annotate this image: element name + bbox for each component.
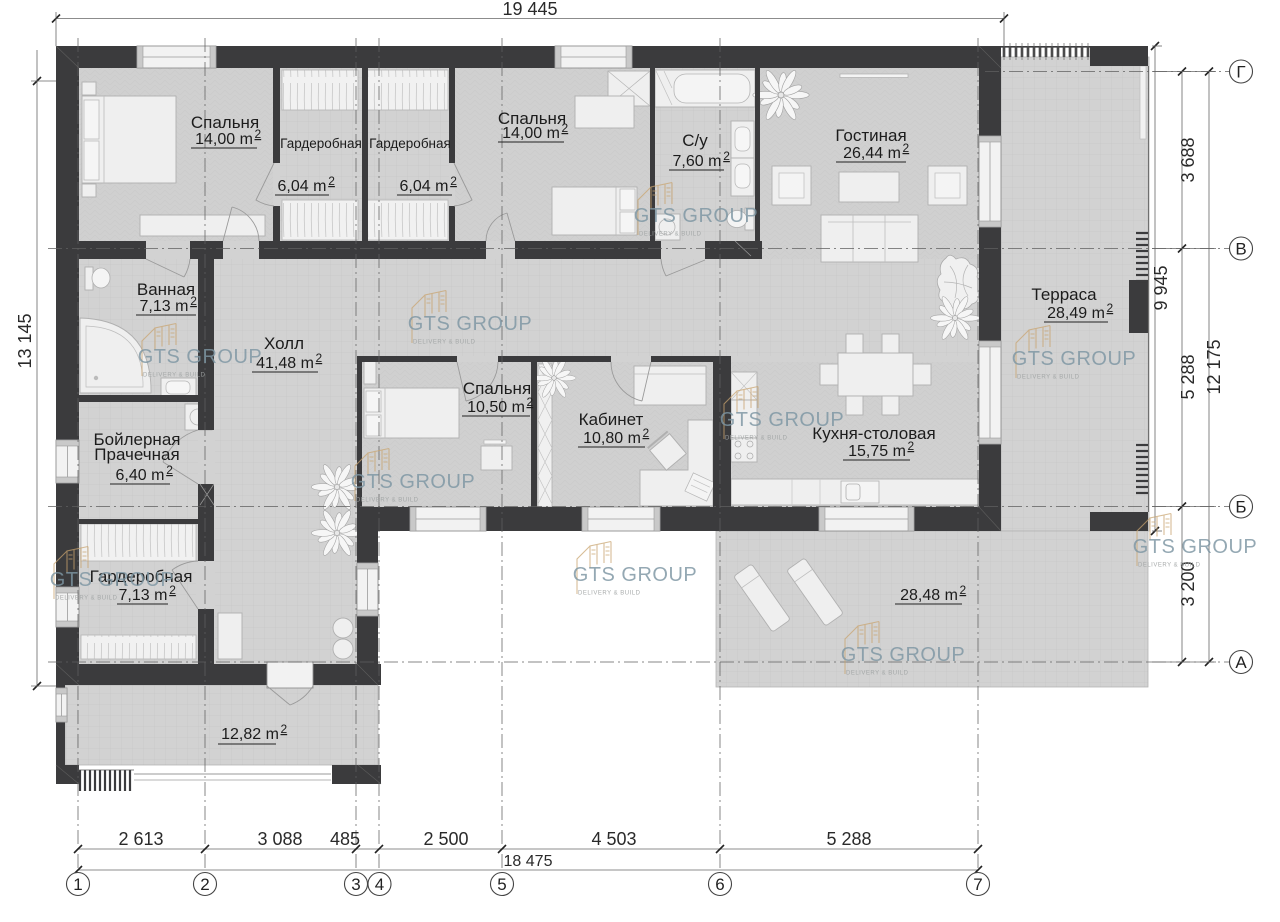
- svg-text:DELIVERY & BUILD: DELIVERY & BUILD: [55, 596, 118, 602]
- svg-text:18 475: 18 475: [504, 853, 553, 870]
- svg-text:10,80 m: 10,80 m: [583, 430, 641, 447]
- svg-text:2: 2: [316, 351, 323, 365]
- svg-text:13 145: 13 145: [15, 313, 35, 368]
- svg-text:DELIVERY & BUILD: DELIVERY & BUILD: [1138, 563, 1201, 569]
- svg-text:2: 2: [1107, 301, 1114, 315]
- svg-text:DELIVERY & BUILD: DELIVERY & BUILD: [356, 498, 419, 504]
- svg-text:2: 2: [328, 174, 335, 188]
- svg-text:Гардеробная: Гардеробная: [280, 136, 362, 151]
- svg-text:5 288: 5 288: [1178, 354, 1198, 399]
- svg-text:GTS GROUP: GTS GROUP: [841, 644, 966, 666]
- svg-text:Холл: Холл: [264, 334, 304, 353]
- svg-text:2: 2: [723, 149, 730, 163]
- svg-text:Терраса: Терраса: [1031, 285, 1097, 304]
- svg-text:Прачечная: Прачечная: [94, 445, 179, 464]
- svg-text:7: 7: [973, 875, 982, 894]
- svg-text:DELIVERY & BUILD: DELIVERY & BUILD: [578, 591, 641, 597]
- svg-text:2: 2: [450, 174, 457, 188]
- svg-text:Гостиная: Гостиная: [835, 126, 906, 145]
- svg-text:2 613: 2 613: [118, 829, 163, 849]
- svg-text:DELIVERY & BUILD: DELIVERY & BUILD: [846, 671, 909, 677]
- svg-text:2: 2: [960, 583, 967, 597]
- svg-text:GTS GROUP: GTS GROUP: [351, 471, 476, 493]
- svg-text:Гардеробная: Гардеробная: [369, 136, 451, 151]
- svg-text:7,13 m: 7,13 m: [140, 298, 189, 315]
- svg-text:4 503: 4 503: [591, 829, 636, 849]
- svg-text:15,75 m: 15,75 m: [848, 443, 906, 460]
- svg-text:7,60 m: 7,60 m: [673, 153, 722, 170]
- svg-text:3 088: 3 088: [257, 829, 302, 849]
- svg-text:DELIVERY & BUILD: DELIVERY & BUILD: [1017, 375, 1080, 381]
- svg-text:14,00 m: 14,00 m: [195, 131, 253, 148]
- svg-text:Б: Б: [1235, 498, 1246, 517]
- svg-text:2: 2: [527, 395, 534, 409]
- svg-text:GTS GROUP: GTS GROUP: [408, 313, 533, 335]
- svg-text:2: 2: [255, 127, 262, 141]
- svg-text:2: 2: [562, 121, 569, 135]
- svg-text:Ванная: Ванная: [137, 280, 195, 299]
- svg-text:28,49 m: 28,49 m: [1047, 305, 1105, 322]
- svg-text:6,40 m: 6,40 m: [116, 467, 165, 484]
- svg-text:DELIVERY & BUILD: DELIVERY & BUILD: [639, 232, 702, 238]
- svg-text:12,82 m: 12,82 m: [221, 726, 279, 743]
- svg-text:В: В: [1235, 240, 1246, 259]
- svg-text:485: 485: [330, 829, 360, 849]
- svg-text:А: А: [1235, 653, 1247, 672]
- svg-text:3 688: 3 688: [1178, 137, 1198, 182]
- svg-text:Спальня: Спальня: [191, 113, 259, 132]
- svg-text:GTS GROUP: GTS GROUP: [1133, 536, 1258, 558]
- svg-text:GTS GROUP: GTS GROUP: [573, 564, 698, 586]
- svg-text:2 500: 2 500: [423, 829, 468, 849]
- svg-text:28,48 m: 28,48 m: [900, 587, 958, 604]
- svg-text:2: 2: [281, 722, 288, 736]
- svg-text:41,48 m: 41,48 m: [256, 355, 314, 372]
- svg-text:Спальня: Спальня: [463, 379, 531, 398]
- svg-text:1: 1: [73, 875, 82, 894]
- svg-text:Г: Г: [1236, 63, 1245, 82]
- svg-text:5: 5: [497, 875, 506, 894]
- svg-text:GTS GROUP: GTS GROUP: [634, 205, 759, 227]
- svg-text:DELIVERY & BUILD: DELIVERY & BUILD: [143, 373, 206, 379]
- svg-text:2: 2: [903, 141, 910, 155]
- svg-text:GTS GROUP: GTS GROUP: [720, 409, 845, 431]
- svg-text:6,04 m: 6,04 m: [278, 178, 327, 195]
- svg-text:GTS GROUP: GTS GROUP: [50, 569, 175, 591]
- svg-text:9 945: 9 945: [1151, 265, 1171, 310]
- svg-text:26,44 m: 26,44 m: [843, 145, 901, 162]
- svg-text:12 175: 12 175: [1204, 339, 1224, 394]
- svg-text:GTS GROUP: GTS GROUP: [138, 346, 263, 368]
- svg-text:2: 2: [200, 875, 209, 894]
- svg-text:2: 2: [166, 463, 173, 477]
- svg-text:4: 4: [375, 875, 384, 894]
- svg-text:GTS GROUP: GTS GROUP: [1012, 348, 1137, 370]
- svg-text:2: 2: [190, 294, 197, 308]
- svg-text:2: 2: [643, 426, 650, 440]
- svg-text:DELIVERY & BUILD: DELIVERY & BUILD: [413, 340, 476, 346]
- svg-text:2: 2: [908, 439, 915, 453]
- svg-text:6,04 m: 6,04 m: [400, 178, 449, 195]
- svg-text:С/у: С/у: [682, 131, 708, 150]
- svg-text:3: 3: [351, 875, 360, 894]
- svg-text:6: 6: [715, 875, 724, 894]
- svg-text:10,50 m: 10,50 m: [467, 399, 525, 416]
- svg-text:5 288: 5 288: [826, 829, 871, 849]
- svg-text:DELIVERY & BUILD: DELIVERY & BUILD: [725, 436, 788, 442]
- svg-text:19 445: 19 445: [502, 0, 557, 19]
- svg-text:14,00 m: 14,00 m: [502, 125, 560, 142]
- svg-text:Кабинет: Кабинет: [579, 410, 644, 429]
